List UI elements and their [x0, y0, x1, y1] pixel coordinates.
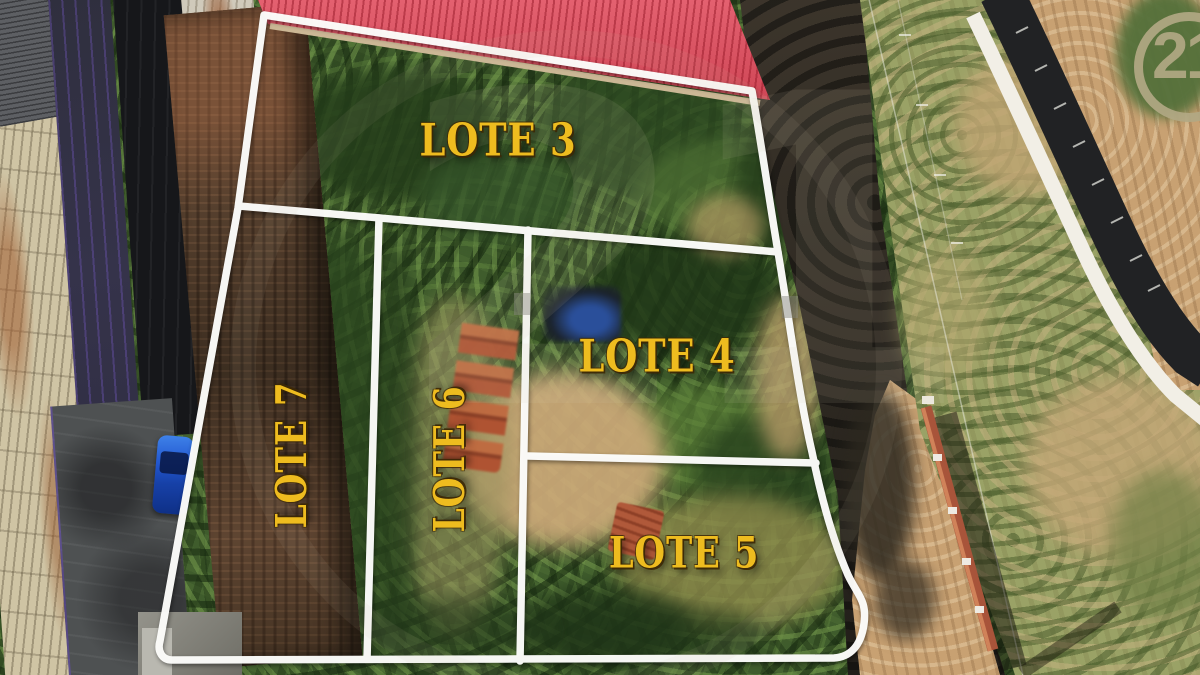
- label-lote-4: LOTE 4: [578, 334, 735, 379]
- aerial-photo: 21 LOTE 3 LOTE 4 LOTE 5 LOTE 6 LOTE 7 21: [0, 0, 1200, 675]
- label-lote-5: LOTE 5: [609, 533, 759, 576]
- label-lote-7: LOTE 7: [271, 382, 313, 529]
- label-lote-6: LOTE 6: [429, 386, 471, 533]
- logo-21-text: 21: [1152, 22, 1200, 88]
- label-lote-3: LOTE 3: [419, 118, 576, 163]
- watermark-21: 21: [395, 40, 953, 470]
- century21-logo: 21: [1120, 4, 1200, 120]
